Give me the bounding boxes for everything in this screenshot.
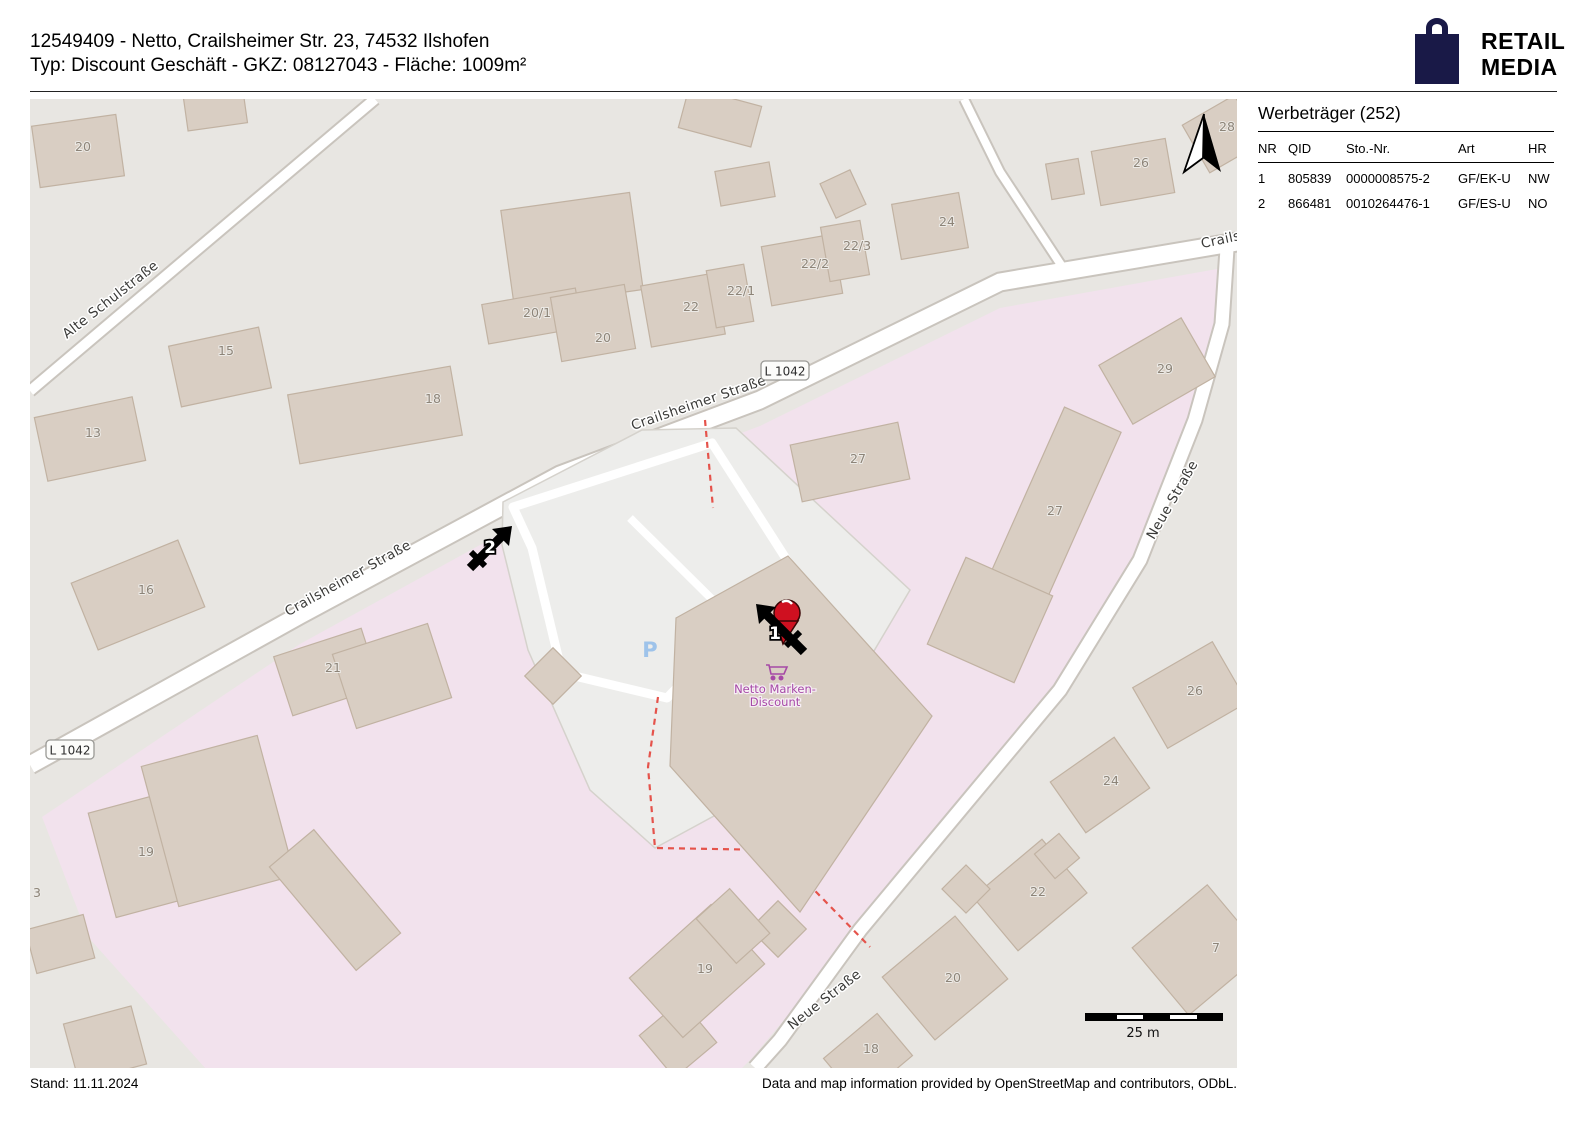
page-title: 12549409 - Netto, Crailsheimer Str. 23, … <box>30 30 526 54</box>
building-number-label: 13 <box>85 425 101 440</box>
building-number-label: 22 <box>1030 884 1046 899</box>
building-number-label: 26 <box>1187 683 1203 698</box>
retail-media-logo: RETAIL MEDIA <box>1413 18 1563 90</box>
building-number-label: 22/2 <box>801 256 829 271</box>
building-number-label: 19 <box>697 961 713 976</box>
column-header: HR <box>1528 138 1554 163</box>
building-number-label: 27 <box>1047 503 1063 518</box>
building-number-label: 20 <box>75 139 91 154</box>
column-header: QID <box>1288 138 1346 163</box>
table-cell: NO <box>1528 188 1554 213</box>
building-number-label: 22/1 <box>727 283 755 298</box>
map-canvas: 20151318162119320/1202222/122/222/324262… <box>30 99 1237 1068</box>
report-page: { "header": { "line1": "12549409 - Netto… <box>0 0 1587 1123</box>
building-number-label: 22/3 <box>843 238 871 253</box>
shopping-bag-icon <box>1413 18 1477 88</box>
building-number-label: 24 <box>1103 773 1119 788</box>
building-number-label: 27 <box>850 451 866 466</box>
table-cell: 866481 <box>1288 188 1346 213</box>
column-header: Sto.-Nr. <box>1346 138 1458 163</box>
marker-number: 2 <box>484 538 496 558</box>
table-cell: 2 <box>1258 188 1288 213</box>
table-cell: 0010264476-1 <box>1346 188 1458 213</box>
parking-symbol: P <box>642 638 657 662</box>
route-badge-label: L 1042 <box>49 744 90 758</box>
column-header: NR <box>1258 138 1288 163</box>
marker-number: 1 <box>769 624 781 644</box>
route-badge-label: L 1042 <box>764 365 805 379</box>
table-header-row: NRQIDSto.-Nr.ArtHR <box>1258 138 1554 163</box>
table-cell: 805839 <box>1288 163 1346 189</box>
table-cell: NW <box>1528 163 1554 189</box>
werbetraeger-table: NRQIDSto.-Nr.ArtHR 18058390000008575-2GF… <box>1258 138 1554 213</box>
building-number-label: 16 <box>138 582 154 597</box>
building-number-label: 15 <box>218 343 234 358</box>
building-number-label: 18 <box>863 1041 879 1056</box>
building-number-label: 24 <box>939 214 955 229</box>
scale-bar: 25 m <box>1085 1013 1223 1041</box>
building-number-label: 26 <box>1133 155 1149 170</box>
building-number-label: 21 <box>325 660 341 675</box>
column-header: Art <box>1458 138 1528 163</box>
building-number-label: 3 <box>33 885 41 900</box>
table-row[interactable]: 28664810010264476-1GF/ES-UNO <box>1258 188 1554 213</box>
panel-title: Werbeträger (252) <box>1258 103 1554 132</box>
building-number-label: 18 <box>425 391 441 406</box>
building-number-label: 7 <box>1212 940 1220 955</box>
poi-name-line1: Netto Marken- <box>734 682 816 696</box>
building-number-label: 29 <box>1157 361 1173 376</box>
report-header: 12549409 - Netto, Crailsheimer Str. 23, … <box>30 30 526 78</box>
page-subtitle: Typ: Discount Geschäft - GKZ: 08127043 -… <box>30 54 526 78</box>
building-number-label: 19 <box>138 844 154 859</box>
werbetraeger-panel: Werbeträger (252) NRQIDSto.-Nr.ArtHR 180… <box>1258 103 1554 213</box>
building-number-label: 22 <box>683 299 699 314</box>
building-number-label: 20/1 <box>523 305 551 320</box>
poi-name-line2: Discount <box>750 695 801 709</box>
building-number-label: 20 <box>595 330 611 345</box>
site-map: 20151318162119320/1202222/122/222/324262… <box>30 99 1237 1068</box>
table-cell: 1 <box>1258 163 1288 189</box>
logo-word-1: RETAIL <box>1481 28 1565 55</box>
logo-word-2: MEDIA <box>1481 54 1558 81</box>
building-number-label: 20 <box>945 970 961 985</box>
table-cell: 0000008575-2 <box>1346 163 1458 189</box>
table-row[interactable]: 18058390000008575-2GF/EK-UNW <box>1258 163 1554 189</box>
table-cell: GF/ES-U <box>1458 188 1528 213</box>
table-cell: GF/EK-U <box>1458 163 1528 189</box>
footer-attribution: Data and map information provided by Ope… <box>30 1076 1237 1091</box>
building-number-label: 28 <box>1219 119 1235 134</box>
scale-label: 25 m <box>1126 1026 1159 1041</box>
header-divider <box>30 91 1557 92</box>
